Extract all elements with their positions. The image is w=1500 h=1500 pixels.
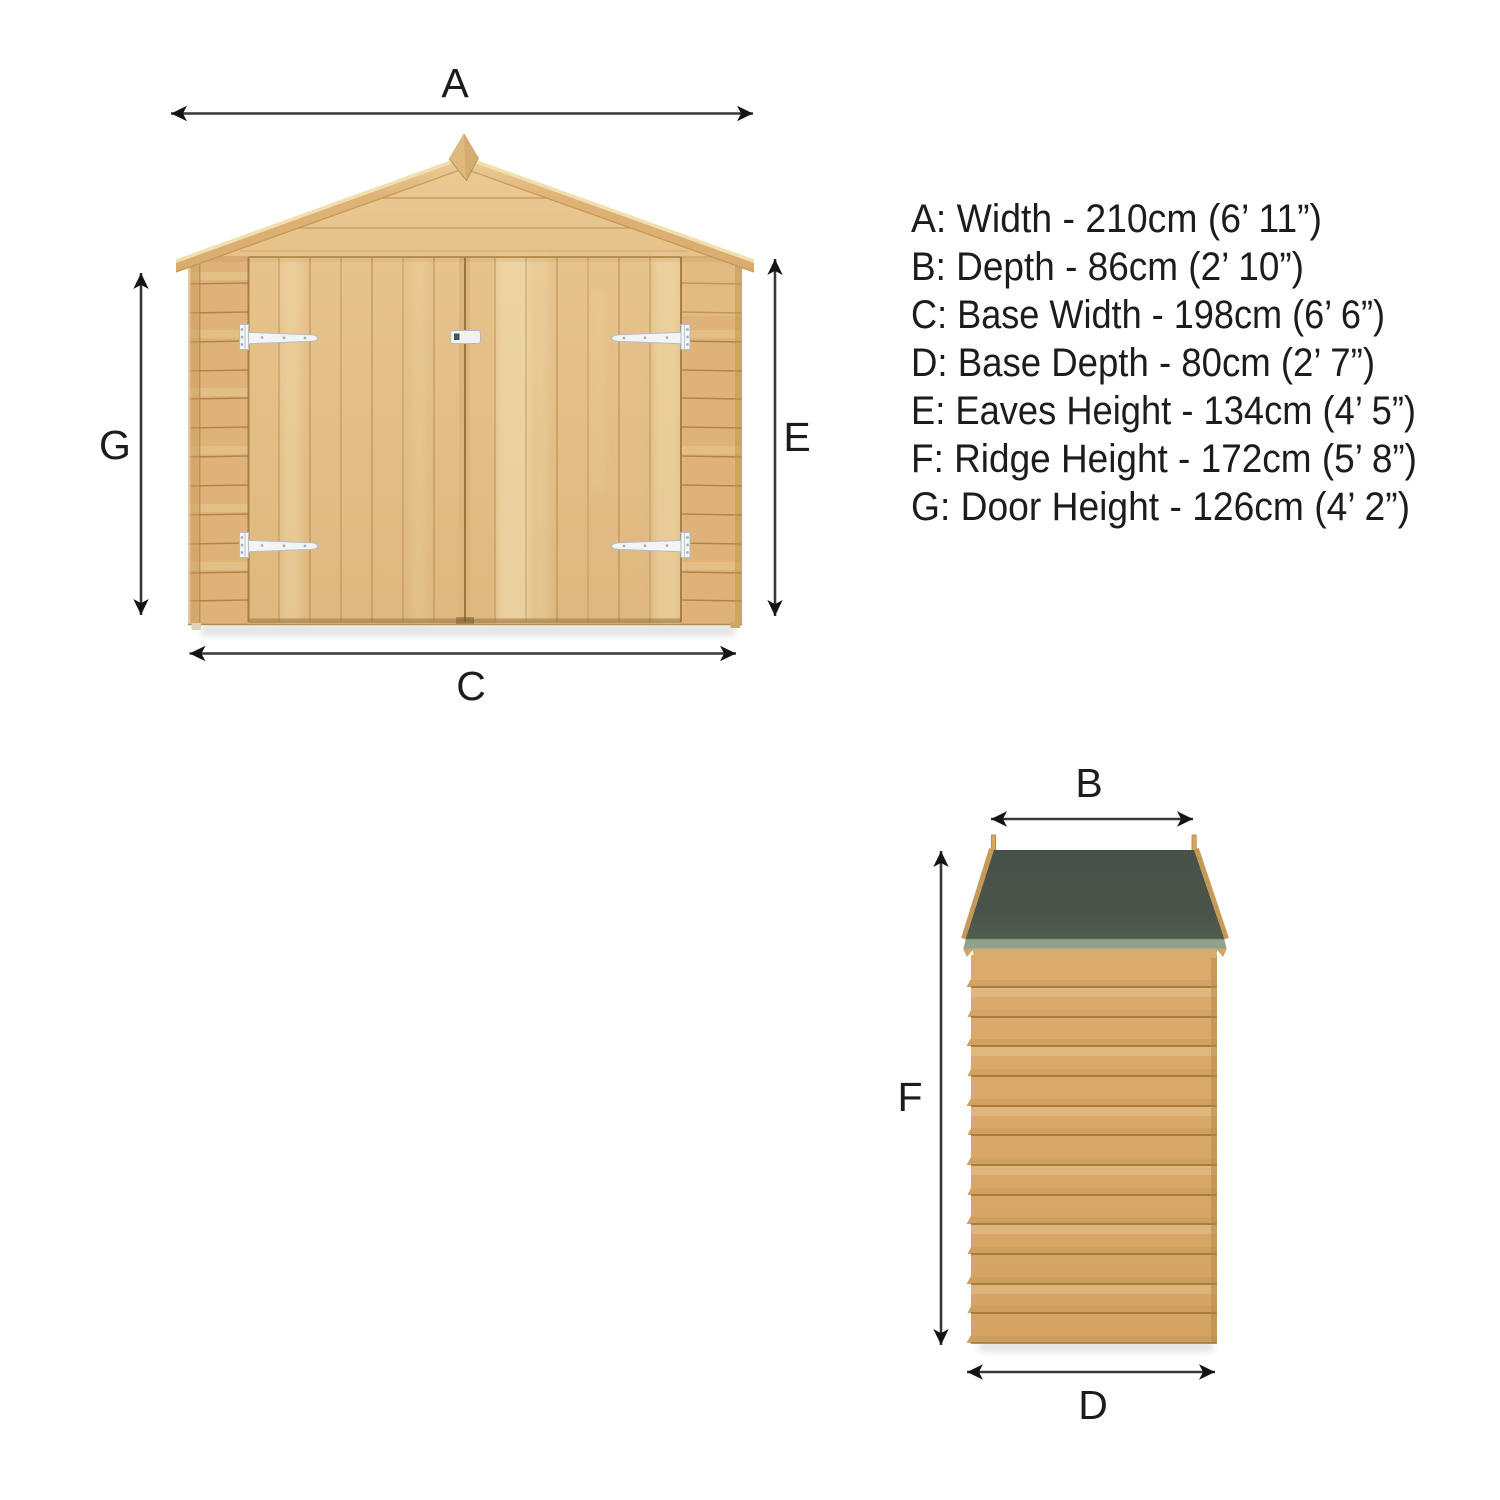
svg-text:D: D (1078, 1382, 1108, 1428)
svg-text:B: B (1075, 760, 1102, 806)
svg-text:E: Eaves Height - 134cm (4’ 5”: E: Eaves Height - 134cm (4’ 5”) (911, 389, 1416, 433)
svg-text:B: Depth - 86cm (2’ 10”): B: Depth - 86cm (2’ 10”) (911, 245, 1304, 289)
svg-text:G: Door Height - 126cm (4’ 2”): G: Door Height - 126cm (4’ 2”) (911, 485, 1410, 529)
svg-text:F: F (897, 1074, 922, 1120)
svg-text:E: E (783, 414, 810, 460)
svg-text:D: Base Depth - 80cm (2’ 7”): D: Base Depth - 80cm (2’ 7”) (911, 341, 1375, 385)
svg-text:F: Ridge Height - 172cm (5’ 8”: F: Ridge Height - 172cm (5’ 8”) (911, 437, 1417, 481)
svg-text:A: Width - 210cm (6’ 11”): A: Width - 210cm (6’ 11”) (911, 197, 1322, 241)
svg-text:C: Base Width - 198cm (6’ 6”): C: Base Width - 198cm (6’ 6”) (911, 293, 1385, 337)
svg-text:C: C (456, 663, 486, 709)
svg-text:G: G (99, 422, 131, 468)
svg-text:A: A (441, 60, 469, 106)
